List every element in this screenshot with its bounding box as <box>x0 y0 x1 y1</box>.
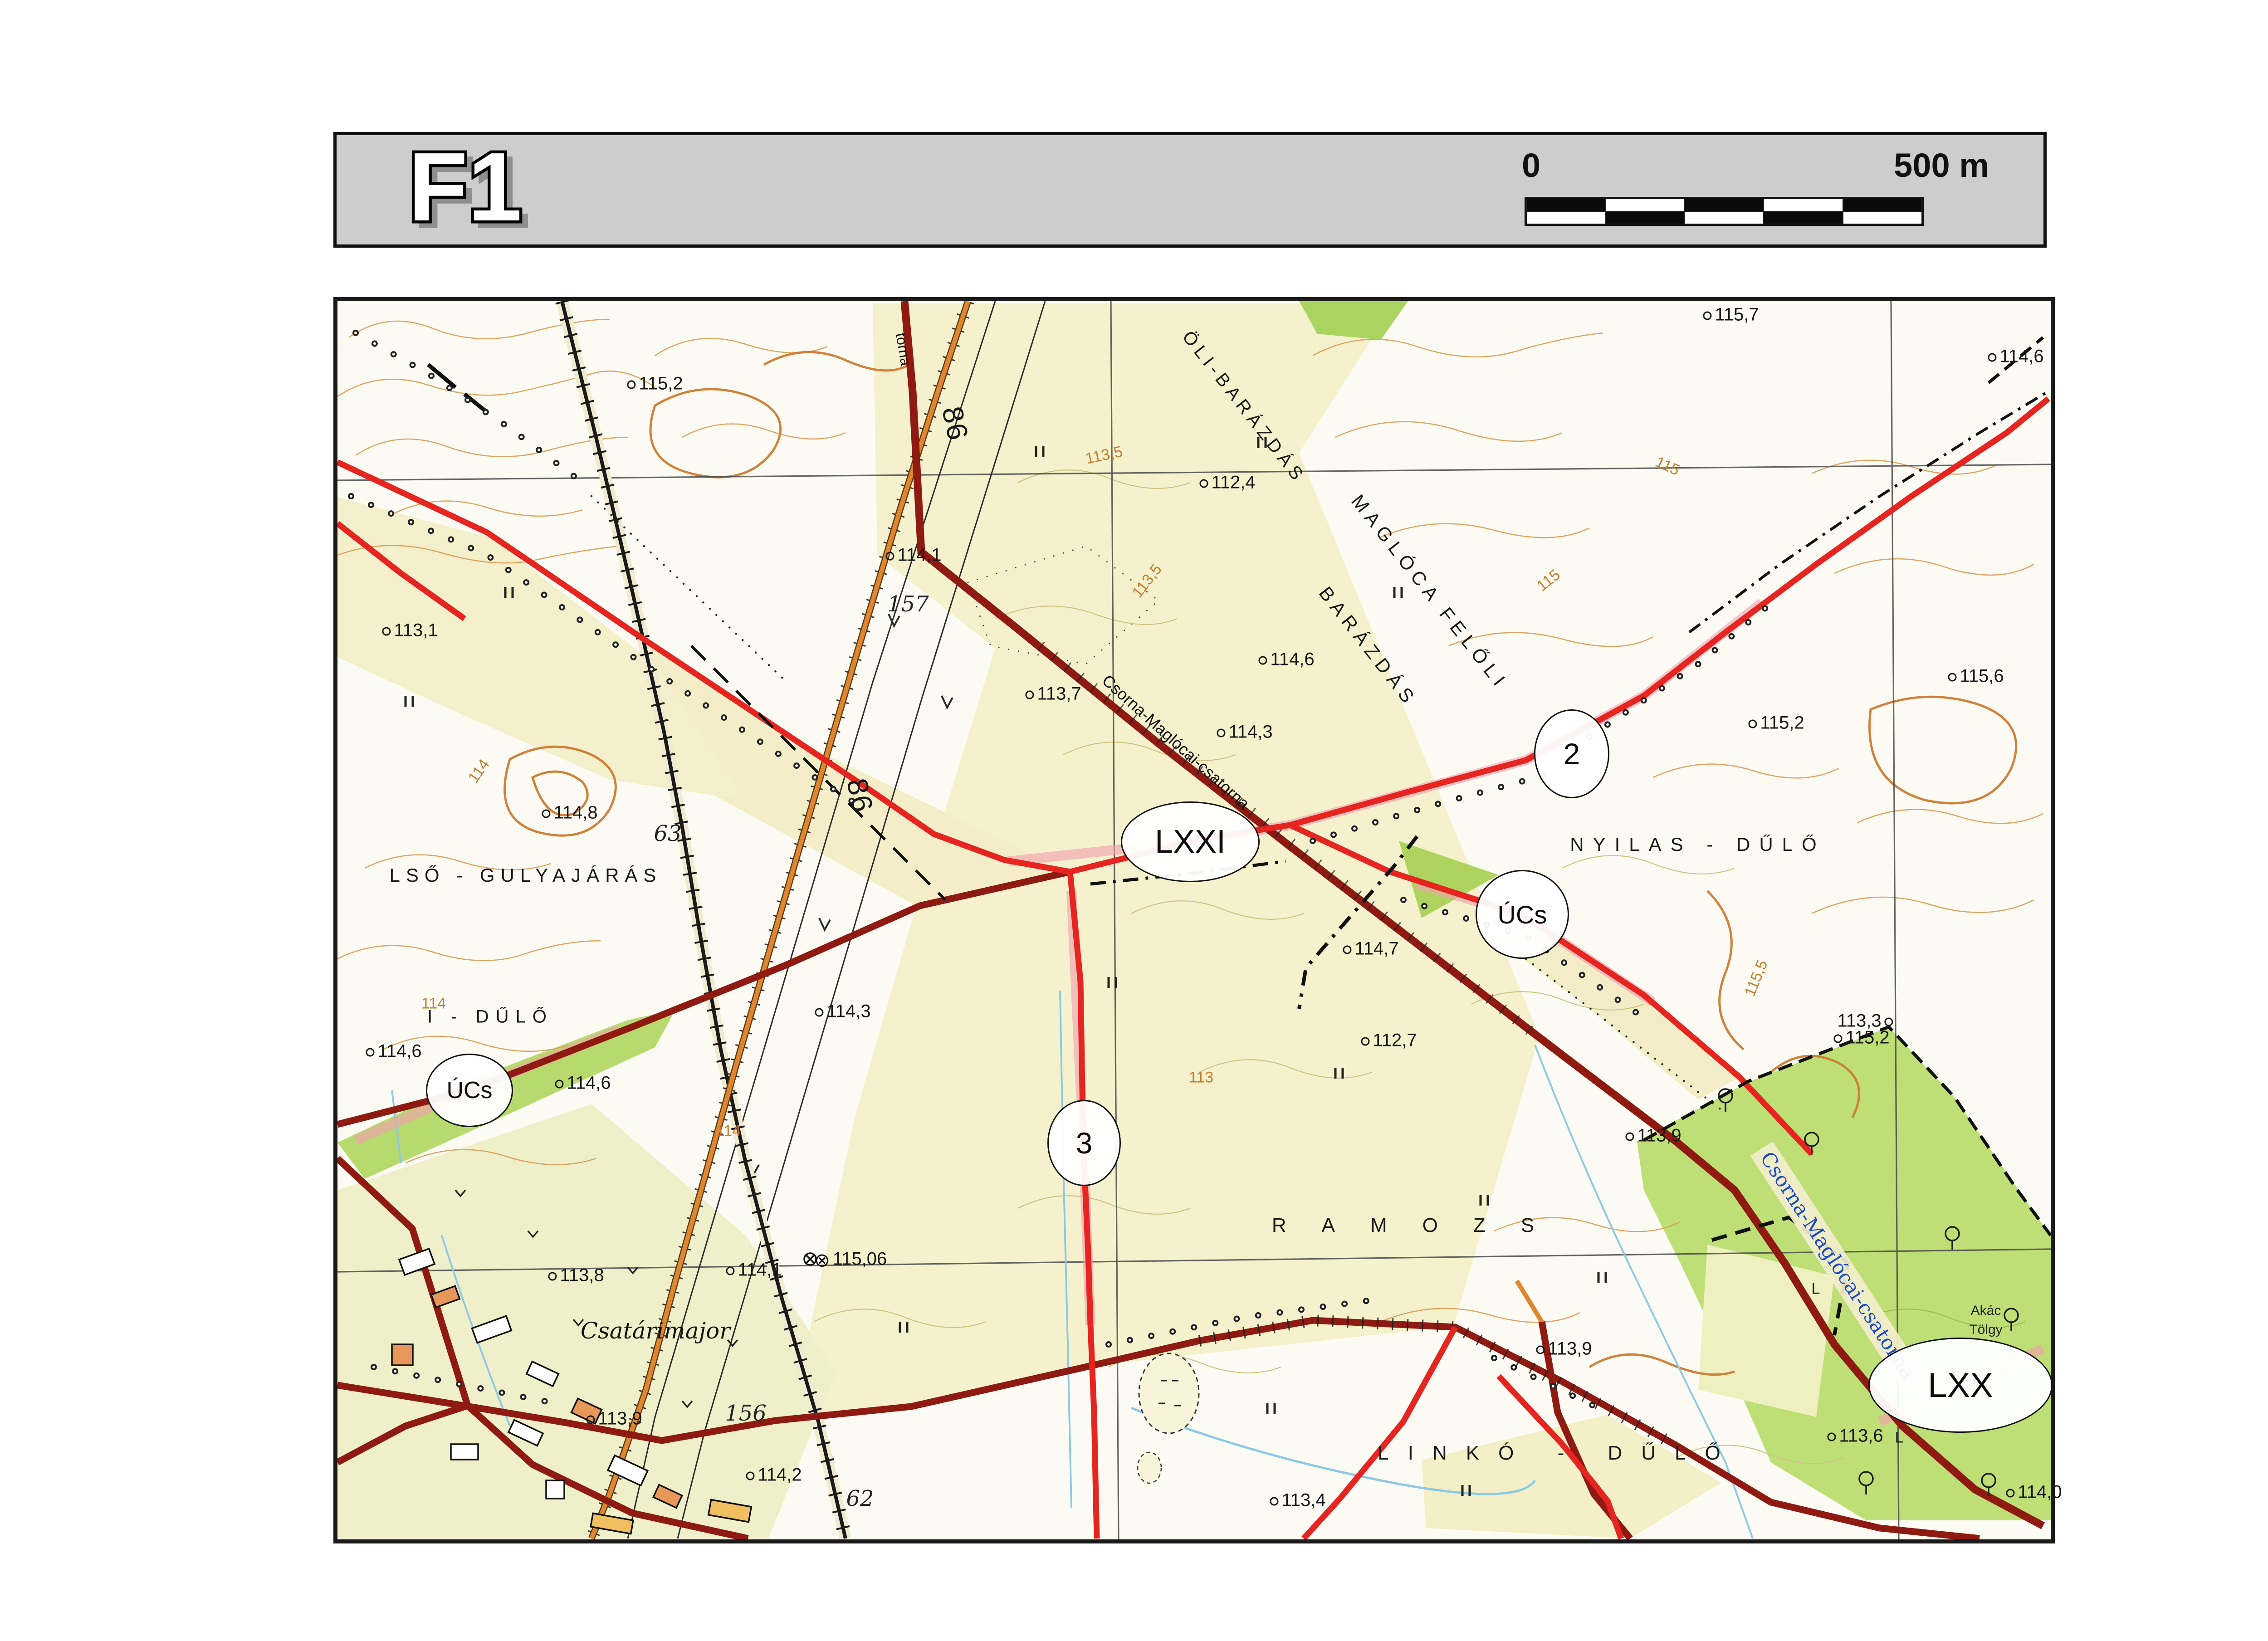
map-graphics <box>337 301 2051 1539</box>
scale-cell <box>1605 211 1684 224</box>
map-canvas[interactable]: 115,2113,1112,4115,7114,6115,6115,2114,1… <box>333 297 2055 1543</box>
field-polygons <box>337 301 2051 1538</box>
scale-cell <box>1685 199 1764 211</box>
scale-cell <box>1764 199 1843 211</box>
sheet-title-text: F1 <box>408 132 522 241</box>
page: F1 F1 0 500 m <box>0 0 2268 1641</box>
title-bar: F1 F1 0 500 m <box>333 132 2047 248</box>
scale-cell <box>1843 211 1922 224</box>
scale-zero-label: 0 <box>1522 146 1540 185</box>
scale-checker <box>1525 197 1924 226</box>
scale-max-label: 500 m <box>1894 146 1989 185</box>
scale-cell <box>1526 211 1605 224</box>
marsh-pond <box>1138 1353 1199 1483</box>
benchmark-symbol <box>804 1253 816 1265</box>
scale-cell <box>1764 211 1843 224</box>
sheet-title: F1 F1 <box>400 130 636 248</box>
scale-cell <box>1685 211 1764 224</box>
scale-cell <box>1843 199 1922 211</box>
scale-cell <box>1526 199 1605 211</box>
scale-cell <box>1605 199 1684 211</box>
scale-bar: 0 500 m <box>1522 143 1989 239</box>
